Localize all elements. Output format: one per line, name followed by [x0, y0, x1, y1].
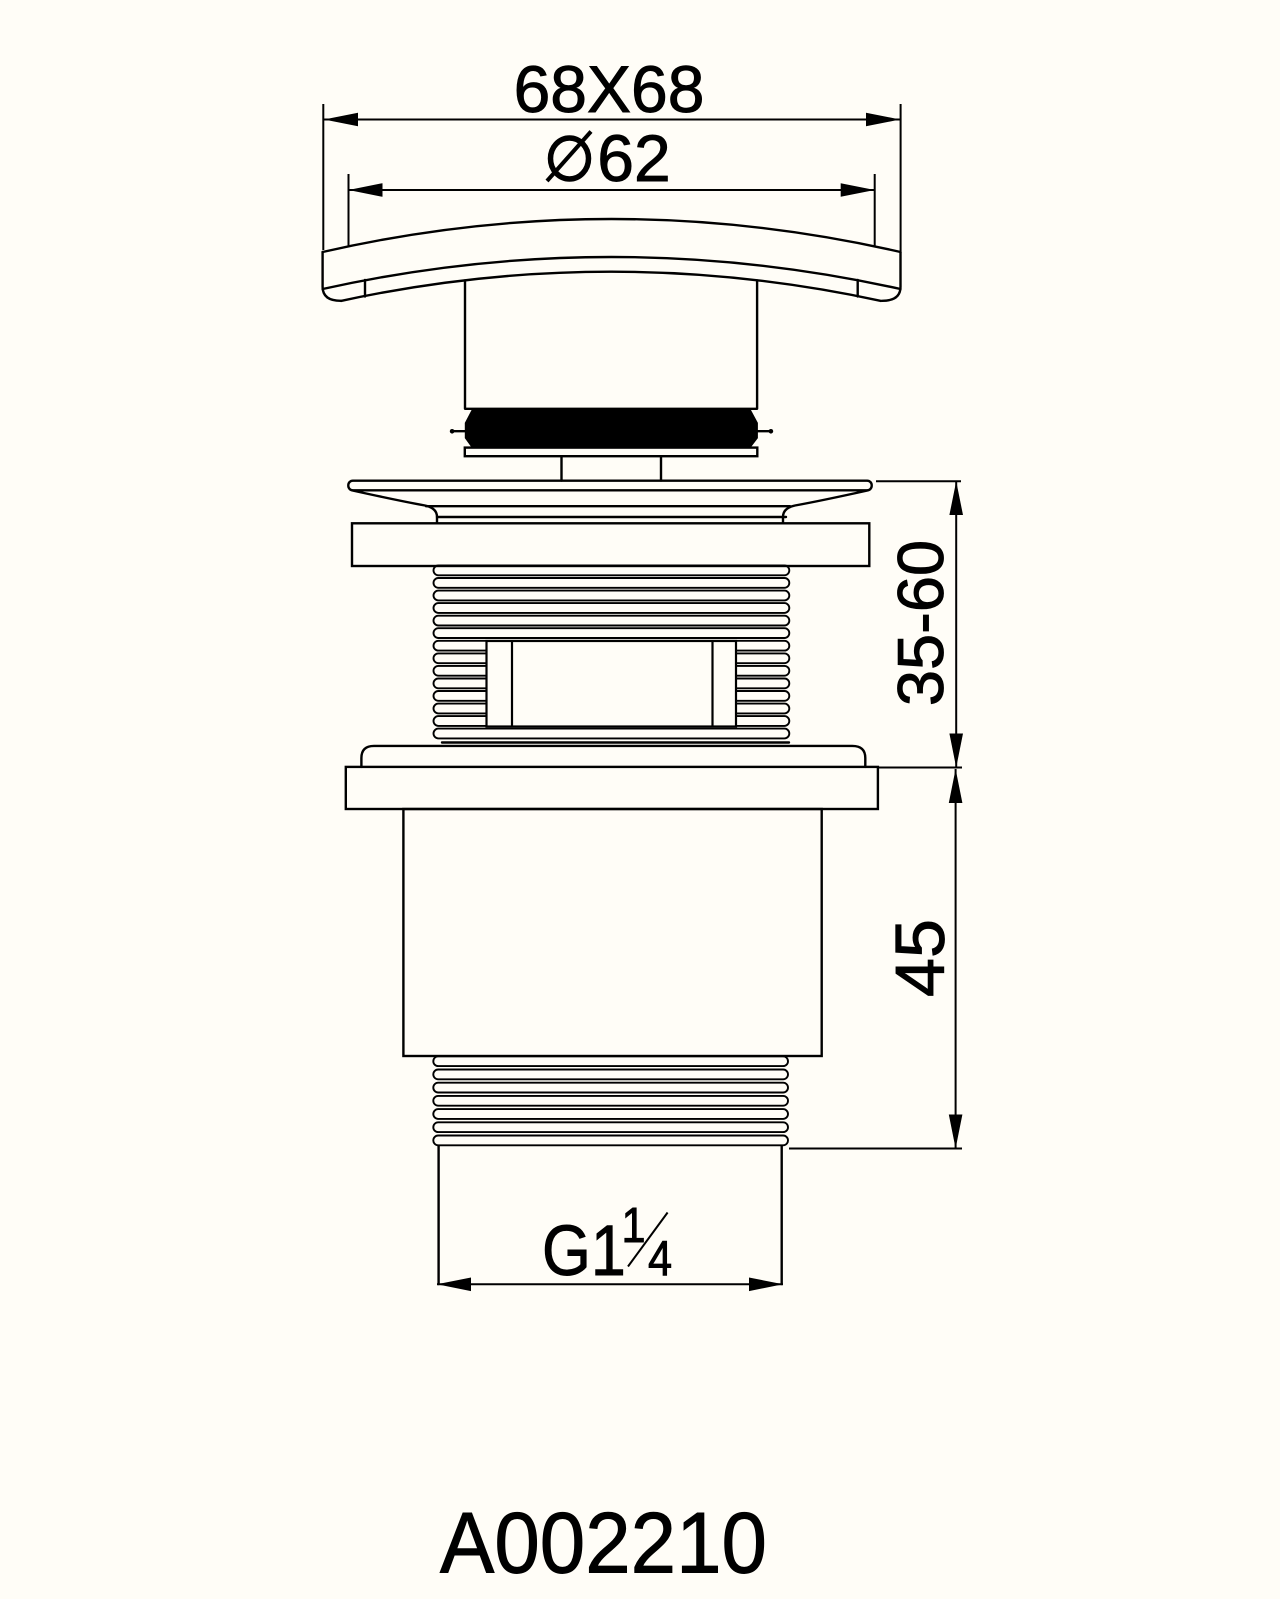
svg-text:68X68: 68X68 — [514, 52, 705, 126]
svg-text:4: 4 — [648, 1231, 672, 1286]
svg-text:35-60: 35-60 — [884, 540, 957, 706]
svg-text:A002210: A002210 — [440, 1495, 767, 1591]
svg-text:G1: G1 — [542, 1211, 626, 1290]
svg-text:62: 62 — [597, 121, 670, 195]
svg-text:45: 45 — [881, 919, 959, 997]
svg-text:1: 1 — [622, 1198, 646, 1253]
